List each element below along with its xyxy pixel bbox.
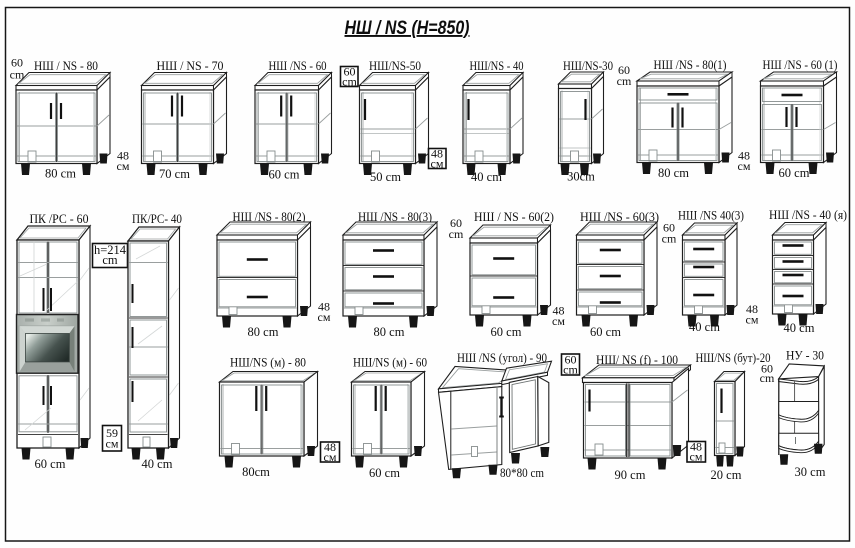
svg-text:cm: cm [760,371,775,385]
svg-text:НШ/NS-50: НШ/NS-50 [369,58,421,73]
svg-text:40 cm: 40 cm [784,321,815,335]
svg-text:НШ /NS - 60: НШ /NS - 60 [269,58,327,73]
svg-text:60 cm: 60 cm [491,325,522,339]
svg-text:НШ/NS - 40: НШ/NS - 40 [470,58,524,73]
svg-text:НШ /NS (угол) - 90: НШ /NS (угол) - 90 [457,350,547,365]
svg-text:НШ / NS - 60(2): НШ / NS - 60(2) [474,209,554,224]
svg-text:ПК/РС- 40: ПК/РС- 40 [132,211,182,226]
svg-text:см: см [431,157,444,171]
svg-text:НШ / NS (H=850): НШ / NS (H=850) [345,18,470,39]
svg-text:60 cm: 60 cm [590,325,621,339]
svg-text:30cm: 30cm [567,170,595,184]
svg-text:НШ/NS-30: НШ/NS-30 [563,58,613,73]
svg-text:90 cm: 90 cm [615,468,646,482]
svg-text:см: см [746,313,759,327]
svg-text:60 cm: 60 cm [35,457,66,471]
svg-text:ПК /РС - 60: ПК /РС - 60 [30,211,89,226]
svg-text:НШ/NS (м) - 80: НШ/NS (м) - 80 [230,355,306,370]
svg-text:см: см [318,310,331,324]
svg-text:НШ / NS - 70: НШ / NS - 70 [157,58,224,73]
svg-text:cm: cm [563,363,578,377]
svg-text:30 cm: 30 cm [795,465,826,479]
svg-text:НУ - 30: НУ - 30 [786,348,824,363]
svg-text:60 cm: 60 cm [269,168,300,182]
svg-text:80 cm: 80 cm [248,325,279,339]
svg-text:80cm: 80cm [242,465,270,479]
svg-text:20 cm: 20 cm [711,468,742,482]
svg-text:НШ /NS 40(3): НШ /NS 40(3) [678,208,744,223]
svg-text:НШ /NS - 80(1): НШ /NS - 80(1) [654,57,727,72]
svg-text:НШ/NS (бут)-20: НШ/NS (бут)-20 [696,350,771,365]
svg-text:80 cm: 80 cm [45,167,76,181]
svg-text:см: см [324,450,337,464]
svg-text:60 cm: 60 cm [779,166,810,180]
svg-text:cm: cm [662,232,677,246]
svg-text:50 cm: 50 cm [370,170,401,184]
svg-text:70 cm: 70 cm [159,167,190,181]
svg-text:cm: cm [342,75,357,89]
svg-text:см: см [552,314,565,328]
svg-text:см: см [106,437,119,451]
svg-text:см: см [117,159,130,173]
svg-text:80 cm: 80 cm [658,166,689,180]
svg-text:НШ / NS - 80: НШ / NS - 80 [34,58,98,73]
svg-text:cm: cm [102,253,118,267]
svg-text:cm: cm [449,227,464,241]
svg-text:40 cm: 40 cm [689,320,720,334]
svg-text:НШ/NS (м) - 60: НШ/NS (м) - 60 [353,355,427,370]
svg-text:40 cm: 40 cm [471,170,502,184]
svg-text:НШ /NS - 60 (1): НШ /NS - 60 (1) [763,57,838,72]
svg-text:cm: cm [617,74,632,88]
svg-text:см: см [690,450,703,464]
svg-text:см: см [738,159,751,173]
svg-text:60 cm: 60 cm [369,466,400,480]
svg-text:80 cm: 80 cm [374,325,405,339]
svg-text:80*80 cm: 80*80 cm [500,466,544,480]
svg-text:40 cm: 40 cm [142,457,173,471]
svg-text:НШ /NS - 40 (я): НШ /NS - 40 (я) [769,207,847,222]
